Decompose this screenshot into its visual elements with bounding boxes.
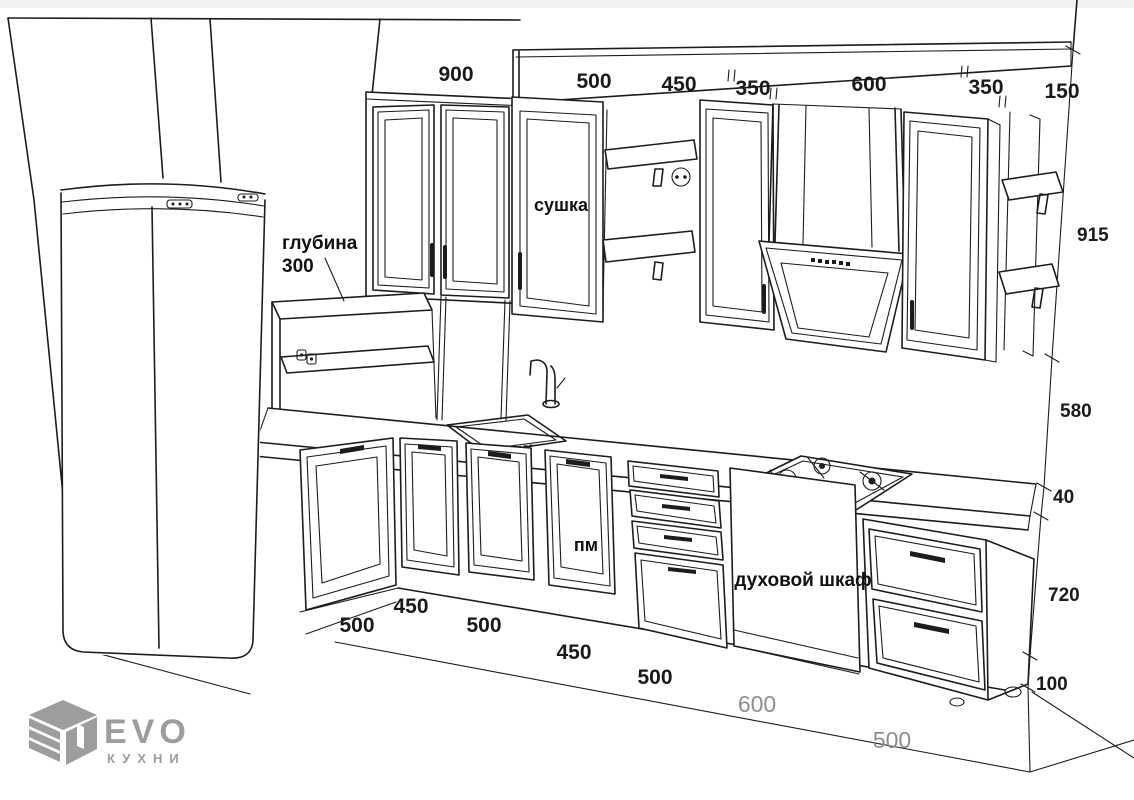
outlet-hole	[300, 353, 303, 356]
dim-bottom-500b: 500	[466, 614, 501, 637]
door-handle	[443, 245, 447, 279]
chimney-top-line	[773, 104, 901, 109]
logo-cube-icon	[29, 700, 97, 765]
fridge-fill	[61, 193, 265, 655]
shelf-bracket	[653, 169, 663, 186]
door	[466, 443, 534, 580]
burner-cap	[819, 463, 825, 469]
door-handle	[430, 243, 434, 277]
dishwasher-label: пм	[574, 535, 598, 555]
hood-section-600	[759, 104, 909, 352]
door	[545, 450, 615, 594]
outlet-hole	[675, 175, 679, 179]
shelf-lower	[603, 231, 695, 262]
drawer-unit-500-right	[863, 519, 1034, 706]
round-outlet-icon	[672, 168, 690, 186]
dim-right-720: 720	[1048, 585, 1080, 606]
dim-right-580: 580	[1060, 401, 1092, 422]
kitchen-plan-page: 900 500 450 350 600 350 150 915 580 40 7…	[0, 0, 1134, 800]
handle-dot	[179, 203, 182, 206]
door	[300, 438, 396, 610]
tall-side-panel-lines	[437, 296, 510, 420]
top-strip	[0, 0, 1134, 8]
handle-dot	[243, 196, 246, 199]
base-sink-cabinet-500	[466, 443, 534, 580]
wall-cabinet-350-left	[700, 100, 774, 330]
dim-right-100: 100	[1036, 674, 1068, 695]
band-top-line-2	[516, 49, 1071, 57]
drawer-4-deep	[635, 553, 727, 648]
unit-back-edge	[432, 310, 436, 418]
depth-leader-line	[325, 258, 344, 301]
dim-bottom-500c: 500	[637, 666, 672, 689]
dim-floor-500: 500	[873, 727, 911, 753]
leg-foot	[950, 698, 964, 706]
depth-value: 300	[282, 256, 314, 277]
dim-top-900: 900	[438, 63, 473, 86]
outlet-hole	[683, 175, 687, 179]
dim-top-150: 150	[1044, 80, 1079, 103]
band-left-edge	[513, 50, 519, 103]
hood-button	[846, 262, 850, 266]
cube-slot	[77, 724, 84, 749]
fridge-top-back	[61, 184, 265, 194]
shelf-upper	[605, 140, 697, 169]
hood-button	[811, 258, 815, 262]
handle-dot	[186, 203, 189, 206]
outlet-hole	[310, 357, 313, 360]
dim-bottom-450a: 450	[393, 595, 428, 618]
oven-label: духовой шкаф	[734, 570, 871, 591]
dishwasher-cabinet	[545, 450, 615, 594]
shelf-bracket	[653, 262, 663, 280]
unit-side-face	[986, 540, 1034, 700]
base-cabinet-450	[400, 438, 459, 575]
shelf-bracket	[1032, 288, 1043, 308]
dim-right-40: 40	[1053, 487, 1074, 508]
hood-body	[759, 241, 909, 352]
open-shelves-450	[603, 110, 697, 308]
shelf-back-edge	[1004, 112, 1010, 350]
dim-top-500: 500	[576, 70, 611, 93]
faucet-body	[530, 360, 555, 404]
depth-label: глубина	[282, 233, 358, 254]
logo-brand-text: EVO	[104, 713, 191, 751]
shelf-side-panel	[1023, 115, 1040, 356]
dim-floor-600: 600	[738, 691, 776, 717]
dim-top-350b: 350	[968, 76, 1003, 99]
base-corner-cabinet-500	[300, 438, 396, 610]
hood-button	[839, 261, 843, 265]
handle-dot	[172, 203, 175, 206]
dim-bottom-450b: 450	[556, 641, 591, 664]
band-top-line	[513, 42, 1071, 50]
hood-button	[832, 260, 836, 264]
door-handle	[762, 284, 766, 314]
door-handle	[518, 252, 522, 290]
dim-top-450: 450	[661, 73, 696, 96]
door	[400, 438, 459, 575]
shelf-upper	[1002, 172, 1063, 200]
dim-right-915: 915	[1077, 225, 1109, 246]
back-wall-corner-a	[151, 18, 163, 178]
logo-subtitle-text: КУХНИ	[107, 751, 186, 766]
floor-corner-right	[1028, 688, 1134, 772]
faucet-lever	[557, 378, 565, 388]
dim-top-600: 600	[851, 73, 886, 96]
open-shelves-150	[999, 112, 1063, 356]
shelf-bracket	[1037, 194, 1048, 214]
faucet	[530, 360, 565, 408]
chimney-panel-lines	[803, 106, 872, 247]
hood-button	[825, 260, 829, 264]
refrigerator	[61, 184, 265, 658]
wall-edge-above-cabinets	[372, 19, 380, 95]
handle-dot	[250, 196, 253, 199]
dim-bottom-500a: 500	[339, 614, 374, 637]
kitchen-drawing: 900 500 450 350 600 350 150 915 580 40 7…	[0, 0, 1134, 800]
hood-button	[818, 259, 822, 263]
dim-top-350a: 350	[735, 77, 770, 100]
door-handle	[910, 300, 914, 330]
brand-logo: EVO КУХНИ	[29, 700, 191, 766]
wall-cabinet-350-right	[902, 112, 1000, 362]
dryer-label: сушка	[534, 195, 589, 215]
unit-top-slab	[272, 293, 432, 319]
ceiling-line	[8, 18, 520, 20]
back-wall-corner-b	[210, 19, 221, 182]
shelf-lower	[999, 264, 1059, 294]
